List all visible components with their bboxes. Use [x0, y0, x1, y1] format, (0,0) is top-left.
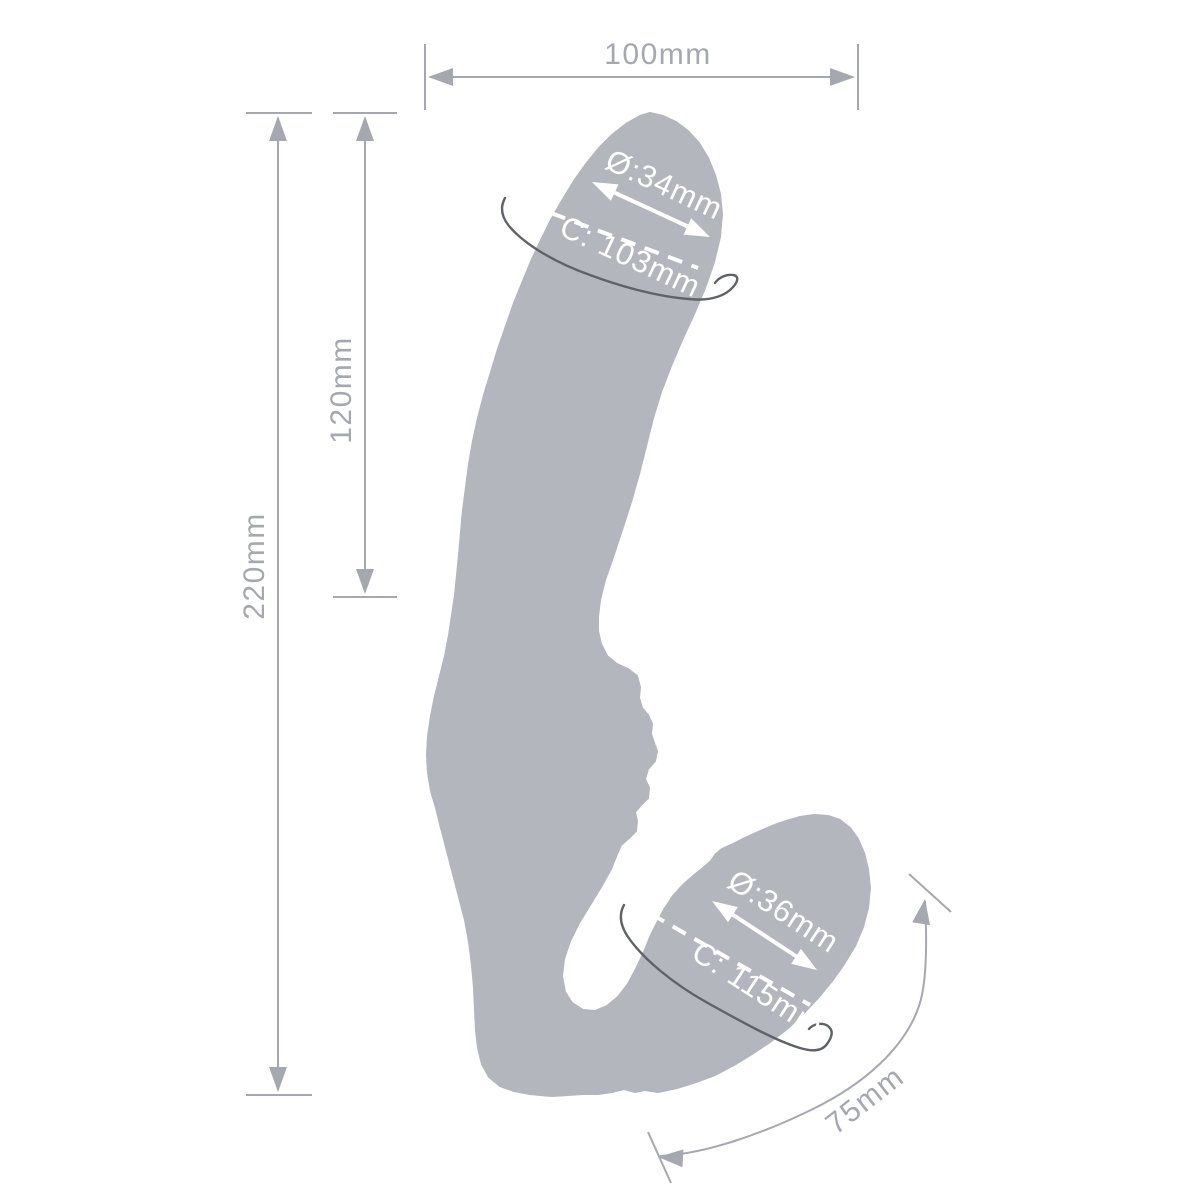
bulb-length-label: 75mm [820, 1060, 911, 1141]
insertable-length-label: 120mm [325, 336, 358, 444]
total-length-label: 220mm [238, 512, 271, 620]
arrowhead [428, 68, 453, 86]
arrowhead [269, 116, 287, 141]
dimension-diagram: 100mm 220mm 120mm 75mm Ø:34mm C: 103mm [0, 0, 1200, 1200]
insertable-length-dimension: 120mm [325, 113, 397, 597]
diagram-canvas: 100mm 220mm 120mm 75mm Ø:34mm C: 103mm [0, 0, 1200, 1200]
arrowhead [356, 116, 374, 141]
overall-width-label: 100mm [604, 38, 712, 71]
arrowhead [912, 898, 934, 926]
total-length-dimension: 220mm [238, 113, 312, 1095]
arrowhead [658, 1148, 684, 1167]
arrowhead [830, 68, 855, 86]
tick [909, 874, 951, 912]
arrowhead [356, 569, 374, 594]
arrowhead [269, 1067, 287, 1092]
overall-width-dimension: 100mm [425, 38, 858, 110]
